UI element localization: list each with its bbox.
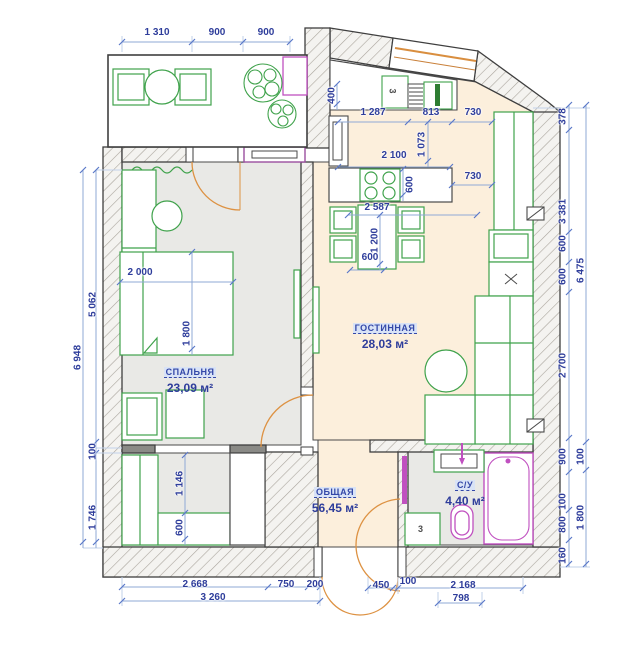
bottom-wall-right (398, 547, 560, 577)
living-cabinets (489, 112, 533, 296)
panel-living-side (313, 287, 319, 353)
plan-drawing (0, 0, 639, 670)
balcony-kitchen-wall (305, 28, 330, 148)
panel-bedroom-side (294, 270, 300, 338)
hall-cabinet (405, 513, 440, 545)
closet-wardrobe-bottom (158, 513, 230, 545)
bathroom-sliding-door (402, 456, 407, 504)
closet-hall-wall (265, 452, 318, 547)
sofa-vertical (475, 296, 533, 444)
closet-top-wall-a (122, 445, 155, 453)
left-wall (103, 147, 122, 577)
bedroom-living-wall (301, 162, 313, 395)
bedroom-stool (152, 201, 182, 231)
bottom-wall-left (103, 547, 322, 577)
balcony-shelf (283, 57, 307, 95)
entry-door-arc (322, 577, 398, 615)
bedroom-top-wall (122, 147, 192, 162)
kitchen-cabinet-3 (382, 76, 408, 108)
floor-plan: 1 310 900 900 400 1 287 813 730 1 073 2 … (0, 0, 639, 670)
bathtub (484, 453, 533, 544)
bedroom-window (244, 147, 305, 162)
closet-cabinet-right (230, 453, 265, 545)
hall-closet-door-arc-bottom (356, 545, 400, 591)
balcony-table (145, 70, 179, 104)
stove-icon (360, 169, 400, 201)
balcony (108, 55, 307, 147)
toilet-icon (451, 505, 473, 539)
bed (120, 252, 233, 355)
kitchen-fridge (329, 116, 348, 166)
sofa-pouf (425, 350, 467, 392)
bath-faucet-icon (506, 459, 511, 464)
right-wall (533, 108, 560, 547)
bedroom-desk (166, 390, 204, 438)
dish-rack-icon (408, 84, 424, 108)
sofa-horizontal (425, 395, 475, 444)
